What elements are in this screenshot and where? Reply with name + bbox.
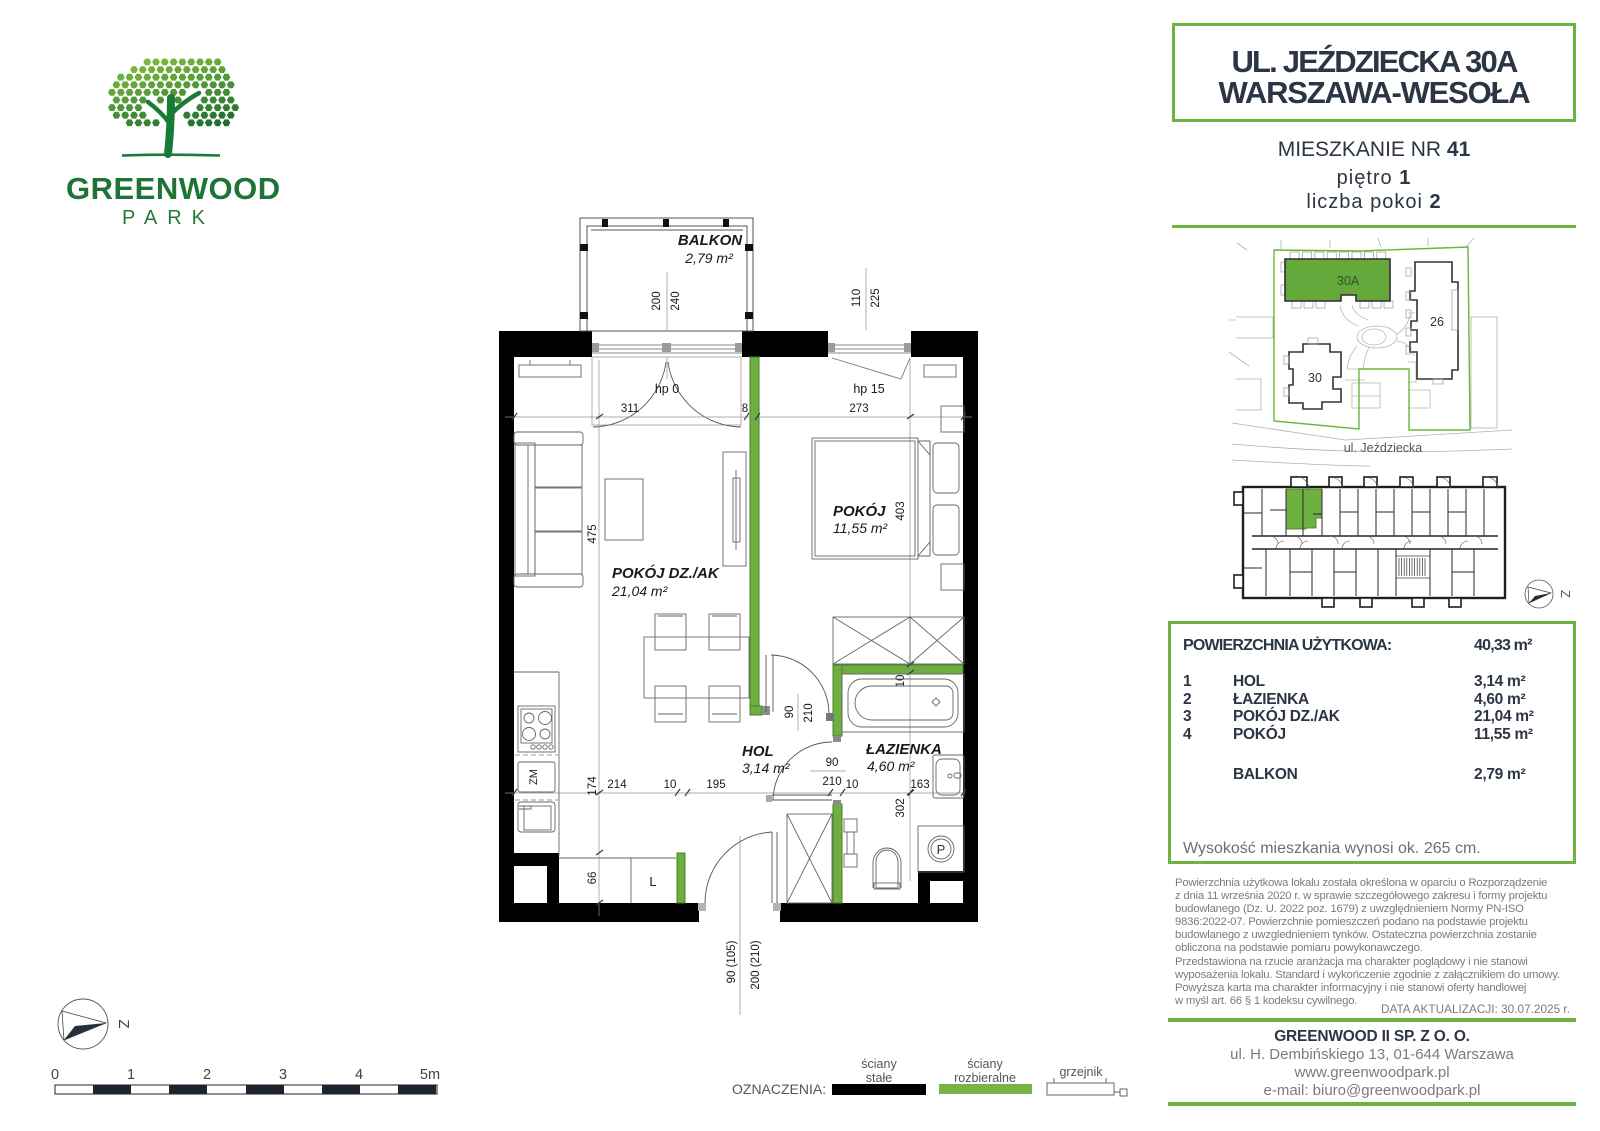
svg-text:ZM: ZM xyxy=(528,769,540,785)
svg-text:210: 210 xyxy=(822,776,841,788)
svg-text:66: 66 xyxy=(587,872,599,885)
svg-text:110: 110 xyxy=(851,289,863,307)
svg-text:1: 1 xyxy=(127,1067,135,1083)
svg-text:hp 15: hp 15 xyxy=(853,382,884,396)
svg-text:30: 30 xyxy=(1308,371,1322,385)
svg-text:ŁAZIENKA: ŁAZIENKA xyxy=(865,741,942,758)
svg-text:GREENWOOD: GREENWOOD xyxy=(66,171,281,206)
svg-text:90: 90 xyxy=(826,757,839,769)
svg-text:4,60 m²: 4,60 m² xyxy=(867,758,916,774)
svg-text:L: L xyxy=(649,874,656,889)
svg-text:ul. Jeździecka: ul. Jeździecka xyxy=(1344,441,1423,455)
svg-text:stałe: stałe xyxy=(866,1071,892,1085)
svg-text:30A: 30A xyxy=(1337,274,1360,288)
svg-text:240: 240 xyxy=(670,291,682,310)
svg-text:214: 214 xyxy=(607,779,627,791)
svg-text:311: 311 xyxy=(621,403,639,415)
svg-text:10: 10 xyxy=(895,675,907,688)
svg-text:grzejnik: grzejnik xyxy=(1059,1065,1103,1079)
svg-text:ściany: ściany xyxy=(861,1057,897,1071)
svg-text:163: 163 xyxy=(910,779,929,791)
svg-text:195: 195 xyxy=(706,779,725,791)
svg-text:4: 4 xyxy=(355,1067,363,1083)
svg-text:Z: Z xyxy=(115,1019,132,1028)
svg-text:10: 10 xyxy=(664,779,677,791)
svg-text:210: 210 xyxy=(803,703,815,722)
svg-text:PARK: PARK xyxy=(122,207,215,229)
svg-text:5m: 5m xyxy=(420,1067,440,1083)
svg-text:90 (105): 90 (105) xyxy=(726,940,738,983)
svg-text:225: 225 xyxy=(870,288,882,307)
svg-text:2,79 m²: 2,79 m² xyxy=(684,250,734,266)
svg-text:200: 200 xyxy=(651,291,663,310)
svg-text:POKÓJ: POKÓJ xyxy=(833,502,886,520)
svg-text:403: 403 xyxy=(895,501,907,520)
svg-text:8: 8 xyxy=(742,403,748,415)
svg-text:ściany: ściany xyxy=(967,1057,1003,1071)
svg-text:90: 90 xyxy=(784,706,796,719)
svg-text:3,14 m²: 3,14 m² xyxy=(742,760,791,776)
svg-text:21,04 m²: 21,04 m² xyxy=(611,583,669,599)
svg-text:200 (210): 200 (210) xyxy=(750,940,762,989)
svg-text:P: P xyxy=(937,842,946,857)
svg-text:0: 0 xyxy=(51,1067,59,1083)
svg-text:Z: Z xyxy=(1558,590,1573,598)
svg-text:hp 0: hp 0 xyxy=(655,382,679,396)
svg-text:rozbieralne: rozbieralne xyxy=(954,1071,1016,1085)
svg-text:OZNACZENIA:: OZNACZENIA: xyxy=(732,1081,826,1097)
svg-text:174: 174 xyxy=(587,776,599,796)
svg-text:3: 3 xyxy=(279,1067,287,1083)
svg-text:475: 475 xyxy=(587,524,599,543)
svg-text:POKÓJ DZ./AK: POKÓJ DZ./AK xyxy=(612,564,720,582)
svg-text:10: 10 xyxy=(846,779,859,791)
svg-text:11,55 m²: 11,55 m² xyxy=(833,520,889,536)
svg-text:HOL: HOL xyxy=(742,743,774,760)
svg-text:273: 273 xyxy=(849,403,868,415)
svg-text:BALKON: BALKON xyxy=(678,232,743,249)
svg-text:302: 302 xyxy=(895,798,907,817)
svg-text:26: 26 xyxy=(1430,315,1444,329)
svg-text:2: 2 xyxy=(203,1067,211,1083)
